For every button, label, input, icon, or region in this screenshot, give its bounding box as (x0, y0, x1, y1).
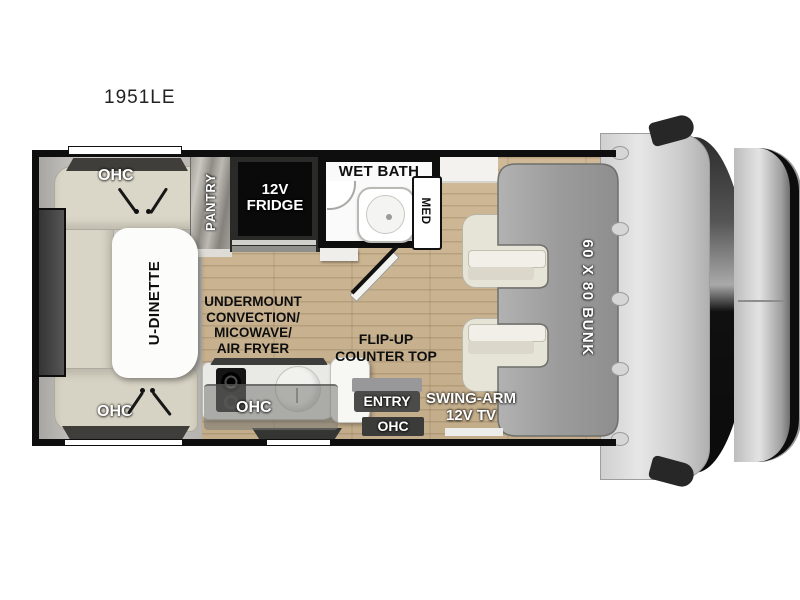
undermount-line4: AIR FRYER (217, 341, 289, 357)
flip-up-line1: FLIP-UP (359, 331, 413, 348)
tv-label: SWING-ARM 12V TV (418, 391, 524, 424)
dinette-label: U-DINETTE (145, 233, 165, 373)
fridge-label-line1: 12V (262, 182, 289, 198)
tv-line1: SWING-ARM (426, 391, 516, 408)
model-title: 1951LE (104, 88, 176, 109)
bunk-base-strip (445, 428, 503, 436)
undermount-line2: CONVECTION/ (206, 310, 300, 326)
tv-line2: 12V TV (446, 408, 496, 425)
fridge-base-shadow (232, 246, 316, 252)
kitchen-ohc-label: OHC (236, 399, 272, 416)
entry-step (352, 378, 422, 392)
toilet-drain (386, 214, 392, 220)
bath-step (320, 248, 358, 261)
pantry-label: PANTRY (202, 142, 220, 262)
dinette-ohc-top-label: OHC (98, 167, 134, 184)
cabover-hinge-tab-1 (611, 146, 629, 160)
entry-ohc-label: OHC (362, 417, 424, 436)
flip-up-line2: COUNTER TOP (335, 348, 437, 365)
ohc-top-dot-right (146, 209, 151, 214)
ohc-top-dot-left (134, 209, 139, 214)
undermount-line1: UNDERMOUNT (204, 294, 302, 310)
window-bottom-wall-left (65, 440, 182, 445)
fridge-label-line2: FRIDGE (247, 198, 304, 214)
window-bottom-wall-center (267, 440, 330, 445)
med-label: MED (417, 171, 433, 251)
cabover-hinge-tab-4 (611, 362, 629, 376)
cabover-hinge-tab-2 (611, 222, 629, 236)
undermount-line3: MICOWAVE/ (214, 325, 292, 341)
bunk-label: 60 X 80 BUNK (577, 238, 597, 358)
window-top-wall (68, 146, 182, 155)
undermount-appliance-label: UNDERMOUNT CONVECTION/ MICOWAVE/ AIR FRY… (193, 294, 313, 356)
ohc-bottom-dot-left (140, 388, 145, 393)
hood-seam (738, 300, 786, 302)
floorplan-canvas: 1951LE U-DINETTE PANTRY 12V FRIDGE WET B… (0, 0, 800, 600)
counter-back-edge (210, 358, 328, 365)
ohc-bottom-dot-right (150, 388, 155, 393)
fridge-base-highlight (232, 240, 316, 245)
flip-up-counter-label: FLIP-UP COUNTER TOP (325, 331, 447, 364)
fridge-label: 12V FRIDGE (238, 178, 312, 218)
entry-label: ENTRY (354, 391, 420, 412)
cabover-hinge-tab-3 (611, 292, 629, 306)
ohc-cabinet-bottom-slab (62, 426, 190, 439)
hood-nose (734, 148, 799, 462)
cabover-hinge-tab-5 (611, 432, 629, 446)
dinette-window (34, 208, 66, 377)
